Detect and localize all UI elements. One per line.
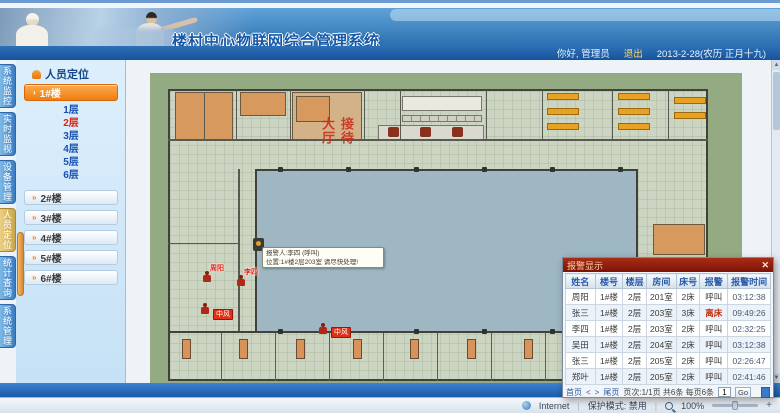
alarm-col-header: 姓名: [566, 274, 596, 289]
alarm-cell: 02:26:47: [728, 353, 771, 369]
alarm-cell: 203室: [647, 305, 677, 321]
nav-tab-5[interactable]: 统计查询: [0, 256, 16, 300]
alarm-cell: 呼叫: [700, 289, 728, 305]
logout-link[interactable]: 退出: [624, 46, 643, 60]
alarm-cell: 呼叫: [700, 321, 728, 337]
floor-item-5[interactable]: 5层: [16, 156, 126, 169]
alarm-cell: 2床: [676, 289, 700, 305]
pillar: [550, 329, 555, 334]
alarm-cell: 2层: [623, 337, 647, 353]
floor-item-3[interactable]: 3层: [16, 130, 126, 143]
building-button-label: 3#楼: [40, 210, 61, 225]
page-info: 页次:1/1页 共6条 每页6条: [623, 387, 714, 398]
building-button-2[interactable]: »2#楼: [24, 190, 118, 205]
date-text: 2013-2-28(农历 正月十九): [657, 46, 766, 60]
alarm-cell: 03:12:38: [728, 337, 771, 353]
alarm-col-header: 床号: [676, 274, 700, 289]
alarm-col-header: 楼层: [623, 274, 647, 289]
wall: [236, 90, 237, 139]
pillar: [482, 329, 487, 334]
alarm-cell: 郑叶: [566, 369, 596, 385]
scroll-up-icon[interactable]: ▲: [772, 60, 780, 70]
floor-item-4[interactable]: 4层: [16, 143, 126, 156]
chevron-right-icon: »: [32, 273, 36, 282]
alarm-cell: 09:49:26: [728, 305, 771, 321]
alarm-cell: 1#楼: [595, 353, 623, 369]
floor-item-1[interactable]: 1层: [16, 104, 126, 117]
bench-seat: [547, 108, 579, 115]
redacted-blur-patch: [92, 28, 174, 46]
floor-list: 1层2层3层4层5层6层: [16, 104, 126, 182]
nav-tab-6[interactable]: 系统管理: [0, 304, 16, 348]
alarm-cell: 3床: [676, 305, 700, 321]
alarm-row: 张三1#楼2层203室3床离床09:49:26: [566, 305, 771, 321]
building-button-label: 2#楼: [40, 190, 61, 205]
alarm-cell: 203室: [647, 321, 677, 337]
room-block: [240, 92, 286, 116]
alarm-cell: 2层: [623, 321, 647, 337]
nav-tab-4[interactable]: 人员定位: [0, 208, 16, 252]
popup-corner-button[interactable]: [761, 387, 770, 398]
alarm-col-header: 报警时间: [728, 274, 771, 289]
person-marker[interactable]: [318, 323, 328, 335]
building-button-3[interactable]: »3#楼: [24, 210, 118, 225]
pillar: [278, 167, 283, 172]
chevron-right-icon: »: [32, 193, 36, 202]
alarm-cell: 张三: [566, 353, 596, 369]
page-prev-link[interactable]: <: [586, 388, 591, 397]
browser-status-bar: Internet | 保护模式: 禁用 | 100% +: [0, 397, 780, 413]
alarm-tooltip: 报警人:李四 (呼叫) 位置:1#楼2层203室 请尽快处理!: [262, 247, 384, 268]
wall: [612, 90, 613, 139]
alarm-cell: 1#楼: [595, 321, 623, 337]
alarm-cell: 2床: [676, 337, 700, 353]
pillar: [482, 167, 487, 172]
alarm-cell: 2层: [623, 305, 647, 321]
bed: [239, 339, 248, 359]
app-window: 楼村中心物联网综合管理系统 你好, 管理员 退出 2013-2-28(农历 正月…: [0, 0, 780, 413]
pillar: [550, 167, 555, 172]
alarm-cell: 周阳: [566, 289, 596, 305]
nav-tab-2[interactable]: 实时监视: [0, 112, 16, 156]
wall: [542, 90, 543, 139]
chevron-right-icon: »: [32, 213, 36, 222]
alarm-cell: 2层: [623, 353, 647, 369]
reception-desk: [402, 96, 482, 111]
page-last-link[interactable]: 尾页: [603, 387, 619, 398]
bench-seat: [547, 123, 579, 130]
alarm-row: 吴田1#楼2层204室2床呼叫03:12:38: [566, 337, 771, 353]
scrollbar-thumb[interactable]: [773, 72, 780, 130]
alarm-cell: 2床: [676, 369, 700, 385]
sofa: [420, 127, 431, 137]
room-block: [653, 224, 705, 255]
go-button[interactable]: Go: [735, 387, 751, 398]
alarm-cell: 02:41:46: [728, 369, 771, 385]
alarm-popup-title: 报警显示: [567, 259, 603, 272]
person-marker-label: 李四: [244, 267, 258, 277]
alert-badge[interactable]: 中风: [331, 327, 351, 338]
alarm-pagination: 首页 < > 尾页 页次:1/1页 共6条 每页6条 Go: [563, 385, 773, 399]
building-button-6[interactable]: »6#楼: [24, 270, 118, 285]
alarm-table: 姓名楼号楼层房间床号报警报警时间 周阳1#楼2层201室2床呼叫03:12:38…: [565, 273, 771, 385]
alert-badge[interactable]: 中风: [213, 309, 233, 320]
corridor-wall: [168, 139, 708, 141]
alarm-row: 郑叶1#楼2层205室2床呼叫02:41:46: [566, 369, 771, 385]
alarm-table-head: 姓名楼号楼层房间床号报警报警时间: [566, 274, 771, 289]
alarm-cell: 2层: [623, 369, 647, 385]
alarm-popup: 报警显示 ✕ 姓名楼号楼层房间床号报警报警时间 周阳1#楼2层201室2床呼叫0…: [562, 257, 774, 398]
alarm-row: 李四1#楼2层203室2床呼叫02:32:25: [566, 321, 771, 337]
alarm-cell: 205室: [647, 369, 677, 385]
alarm-cell: 1#楼: [595, 337, 623, 353]
close-icon[interactable]: ✕: [761, 260, 769, 270]
pillar: [414, 167, 419, 172]
wall: [290, 90, 291, 139]
alarm-cell: 02:32:25: [728, 321, 771, 337]
status-internet: Internet: [539, 401, 570, 411]
tooltip-line2: 位置:1#楼2层203室 请尽快处理!: [266, 258, 380, 267]
alarm-col-header: 房间: [647, 274, 677, 289]
alarm-col-header: 报警: [700, 274, 728, 289]
zoom-plus-icon[interactable]: +: [766, 400, 772, 411]
status-zoom-level[interactable]: 100%: [681, 401, 704, 411]
app-title: 楼村中心物联网综合管理系统: [172, 30, 380, 46]
alarm-cell: 1#楼: [595, 289, 623, 305]
bench-seat: [547, 93, 579, 100]
sidebar-collapse-handle[interactable]: [17, 232, 24, 296]
alarm-cell: 1#楼: [595, 369, 623, 385]
alarm-cell: 李四: [566, 321, 596, 337]
wall: [668, 90, 669, 139]
bed: [182, 339, 191, 359]
sidebar-panel: 人员定位 › 1#楼 1层2层3层4层5层6层 »2#楼»3#楼»4#楼»5#楼…: [16, 60, 126, 383]
pillar: [618, 167, 623, 172]
alarm-popup-titlebar[interactable]: 报警显示 ✕: [563, 258, 773, 272]
wall: [486, 90, 487, 139]
alarm-cell: 201室: [647, 289, 677, 305]
tooltip-line1: 报警人:李四 (呼叫): [266, 249, 380, 258]
alarm-cell: 03:12:38: [728, 289, 771, 305]
pillar: [278, 329, 283, 334]
bed: [410, 339, 419, 359]
building-button-1[interactable]: › 1#楼: [24, 84, 118, 101]
building-list: »2#楼»3#楼»4#楼»5#楼»6#楼: [24, 190, 118, 290]
wall: [238, 169, 240, 333]
wall: [168, 243, 239, 244]
floor-item-2[interactable]: 2层: [16, 117, 126, 130]
separator: |: [577, 401, 579, 411]
wall: [400, 90, 401, 139]
bed: [353, 339, 362, 359]
alarm-cell: 呼叫: [700, 369, 728, 385]
bench-seat: [618, 93, 650, 100]
magnifier-icon: [665, 402, 673, 410]
alarm-cell: 离床: [700, 305, 728, 321]
separator: |: [655, 401, 657, 411]
banner-highlight: [390, 9, 780, 21]
zoom-slider-thumb[interactable]: [732, 401, 738, 410]
photo-person1-body: [16, 25, 48, 46]
zoom-slider[interactable]: [712, 404, 758, 407]
alarm-cell: 呼叫: [700, 337, 728, 353]
alarm-cell: 张三: [566, 305, 596, 321]
alarm-cell: 呼叫: [700, 353, 728, 369]
alarm-cell: 吴田: [566, 337, 596, 353]
chevron-right-icon: »: [32, 233, 36, 242]
building-button-label: 4#楼: [40, 230, 61, 245]
building-button-5[interactable]: »5#楼: [24, 250, 118, 265]
person-marker[interactable]: [200, 303, 210, 315]
bench-seat: [618, 123, 650, 130]
alarm-cell: 205室: [647, 353, 677, 369]
alarm-cell: 1#楼: [595, 305, 623, 321]
status-protected-mode: 保护模式: 禁用: [588, 399, 647, 412]
chevron-right-icon: ›: [33, 88, 36, 97]
alarm-cell: 2床: [676, 353, 700, 369]
person-icon: [32, 70, 41, 79]
pillar: [414, 329, 419, 334]
alarm-col-header: 楼号: [595, 274, 623, 289]
building-button-1-label: 1#楼: [40, 85, 61, 100]
building-button-4[interactable]: »4#楼: [24, 230, 118, 245]
sidebar-header-label: 人员定位: [45, 66, 89, 82]
desk-chairs: [402, 115, 482, 122]
wall: [364, 90, 365, 139]
pillar: [346, 167, 351, 172]
wall: [204, 92, 205, 140]
bed: [524, 339, 533, 359]
bed: [296, 339, 305, 359]
building-button-label: 5#楼: [40, 250, 61, 265]
sofa: [452, 127, 463, 137]
page-first-link[interactable]: 首页: [566, 387, 582, 398]
bench-seat: [674, 112, 706, 119]
nav-tab-3[interactable]: 设备管理: [0, 160, 16, 204]
bed: [467, 339, 476, 359]
chevron-right-icon: »: [32, 253, 36, 262]
alarm-cell: 204室: [647, 337, 677, 353]
header-banner: 楼村中心物联网综合管理系统: [0, 8, 780, 46]
sofa: [388, 127, 399, 137]
bench-seat: [618, 108, 650, 115]
page-next-link[interactable]: >: [595, 388, 600, 397]
person-marker-label: 周阳: [210, 263, 224, 273]
alarm-cell: 2床: [676, 321, 700, 337]
user-strip: 你好, 管理员 退出 2013-2-28(农历 正月十九): [0, 46, 780, 60]
alarm-table-body: 周阳1#楼2层201室2床呼叫03:12:38张三1#楼2层203室3床离床09…: [566, 289, 771, 385]
globe-icon: [522, 401, 531, 410]
bench-seat: [674, 97, 706, 104]
page-number-input[interactable]: [718, 387, 731, 397]
nav-tab-1[interactable]: 系统监控: [0, 64, 16, 108]
sidebar-header: 人员定位: [16, 60, 125, 87]
alarm-cell: 2层: [623, 289, 647, 305]
alarm-row: 周阳1#楼2层201室2床呼叫03:12:38: [566, 289, 771, 305]
hall-label: 接待大厅: [318, 117, 356, 153]
building-button-label: 6#楼: [40, 270, 61, 285]
alarm-row: 张三1#楼2层205室2床呼叫02:26:47: [566, 353, 771, 369]
floor-item-6[interactable]: 6层: [16, 169, 126, 182]
greeting-text: 你好, 管理员: [557, 46, 610, 60]
